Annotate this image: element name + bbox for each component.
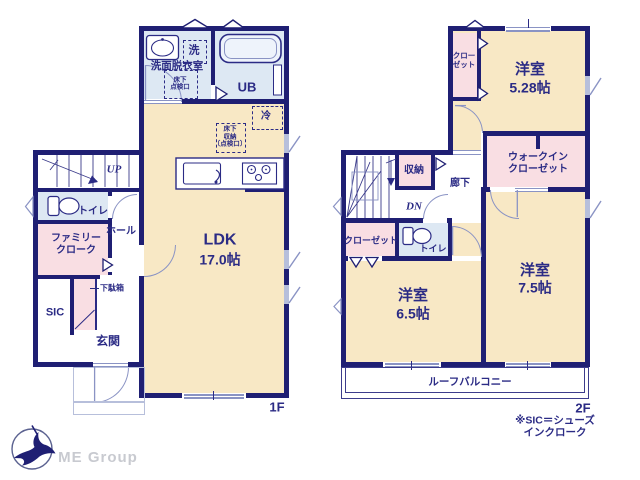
shoe-cabinet-label: 下駄箱: [100, 283, 124, 292]
family-cloak-label: ファミリー クローク: [51, 233, 101, 257]
room-528-size-label: 5.28帖: [509, 80, 550, 97]
walk-in-closet-label: ウォークイン クローゼット: [508, 152, 568, 176]
balcony-label: ルーフバルコニー: [428, 376, 511, 388]
stairs-down-label: DN: [406, 201, 422, 214]
toilet-label-1f: トイレ: [78, 206, 108, 218]
shoe-cabinet-tick: [90, 288, 99, 289]
closet-528-label: クロー ゼット: [453, 52, 476, 70]
underfloor-storage-label: 床下 収納 〔点検口〕: [214, 126, 247, 149]
hall-label: ホール: [106, 226, 136, 238]
underfloor-hatch-label: 床下 点検口: [170, 76, 190, 91]
entrance-label: 玄関: [96, 334, 120, 348]
room-75-size-label: 7.5帖: [518, 280, 551, 297]
company-logo-text: ME Group: [58, 449, 138, 467]
ldk-size-label: 17.0帖: [199, 252, 240, 269]
washroom-label: 洗面脱衣室: [151, 60, 204, 72]
ldk-label: LDK: [204, 232, 237, 251]
stairs-up-label: UP: [107, 164, 122, 177]
floor-plan-canvas: 洗面脱衣室 洗 床下 点検口 UB 冷 床下 収納 〔点検口〕 LDK 17.0…: [0, 0, 640, 480]
room-65-label: 洋室: [398, 287, 428, 305]
fridge-label: 冷: [261, 111, 271, 123]
room-75-label: 洋室: [520, 262, 550, 280]
sic-footnote: ※SIC＝シューズインクローク: [513, 415, 598, 440]
storage-label: 収納: [404, 165, 424, 177]
corridor-label: 廊下: [450, 178, 470, 190]
toilet-label-2f: トイレ: [419, 244, 446, 255]
washer-label: 洗: [189, 45, 200, 58]
closet-65-label: クローゼット: [344, 236, 398, 247]
unit-bath-label: UB: [238, 79, 257, 94]
floor1-label: 1F: [269, 399, 284, 414]
layer-labels: 洗面脱衣室 洗 床下 点検口 UB 冷 床下 収納 〔点検口〕 LDK 17.0…: [0, 0, 640, 480]
floor2-label: 2F: [575, 400, 590, 415]
room-65-size-label: 6.5帖: [396, 306, 429, 323]
room-528-label: 洋室: [515, 61, 545, 79]
sic-label: SIC: [46, 307, 64, 320]
